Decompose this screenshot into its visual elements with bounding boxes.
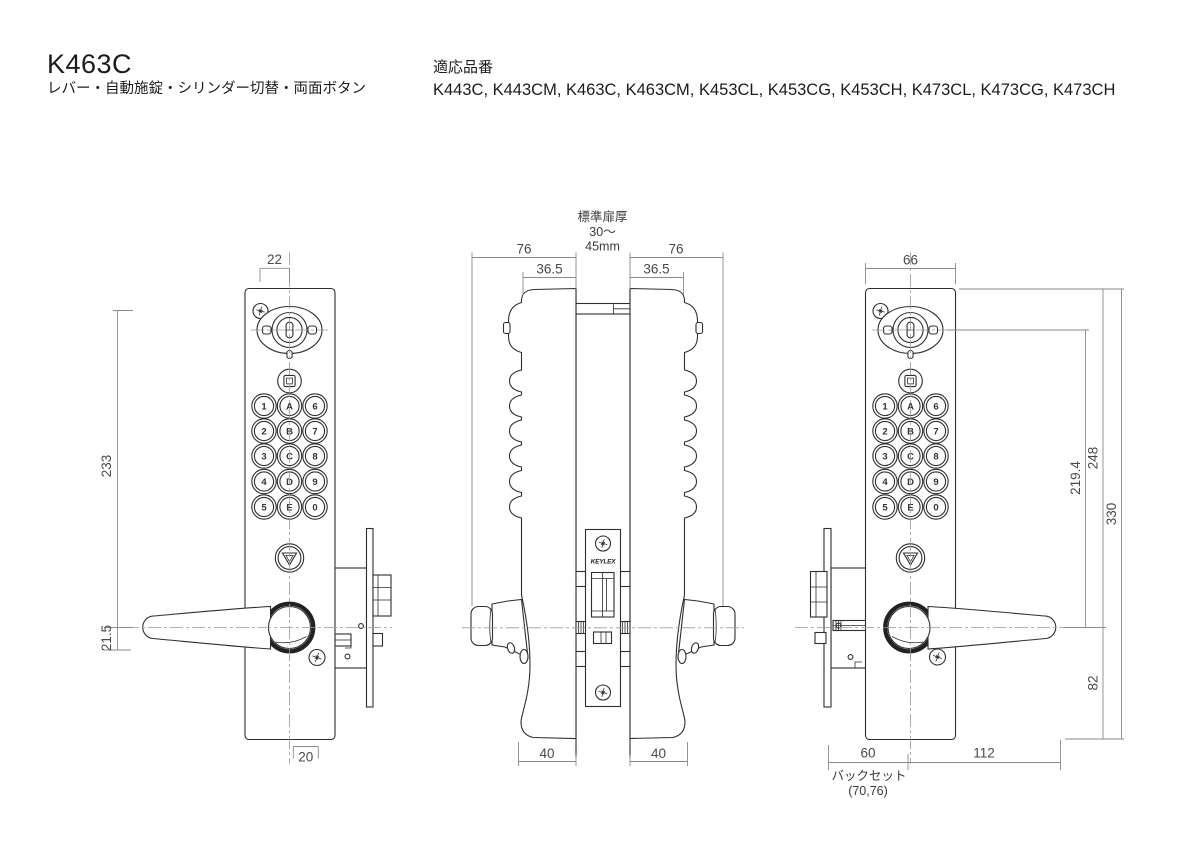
dim-label: 36.5 [643,262,669,277]
keypad-button: 8 [924,444,948,468]
keypad-button-label: 3 [261,451,266,462]
keypad-button: 3 [873,444,897,468]
keypad-button: 3 [252,444,276,468]
keypad-button: 0 [303,495,327,519]
spec-sheet-page: K463C レバー・自動施錠・シリンダー切替・両面ボタン 適応品番 K443C,… [0,0,1200,848]
dim-label: 22 [267,252,282,267]
keypad-button-label: 3 [882,451,887,462]
compatible-models-list: K443C, K443CM, K463C, K463CM, K453CL, K4… [433,81,1115,99]
dim-label: 40 [539,746,554,761]
spindle [576,304,630,315]
keypad-button: 0 [924,495,948,519]
door-thickness-range: 30〜 [589,225,615,239]
keypad-button: 5 [873,495,897,519]
dim-label: 66 [903,253,918,268]
keypad-button-label: 5 [882,502,888,513]
keypad-button: 4 [252,469,276,493]
keypad-button: 1 [252,394,276,418]
keypad-button: 2 [252,419,276,443]
screw-icon [930,649,946,665]
brand-logo: KEYLEX [591,559,617,566]
keypad-button-label: 9 [933,477,938,488]
keypad-button-label: 8 [933,451,938,462]
keypad-button: 1 [873,394,897,418]
backset-options: (70,76) [848,784,888,798]
keypad-button-label: 1 [882,401,888,412]
keypad-button-label: 8 [312,451,317,462]
door-thickness-unit: 45mm [585,240,620,254]
keypad-button: 6 [303,394,327,418]
dim-label: 112 [973,746,995,761]
keypad-button-label: 4 [882,477,888,488]
keypad-button: 5 [252,495,276,519]
keypad-button-label: 6 [312,401,317,412]
compatible-models-label: 適応品番 [433,58,493,76]
keypad-button: 9 [303,469,327,493]
keypad-button: 4 [873,469,897,493]
keypad-button: 7 [924,419,948,443]
keypad-button-label: 2 [261,426,266,437]
keypad-button-label: 9 [312,477,317,488]
dim-label: 36.5 [536,262,562,277]
dim-label: 60 [860,746,875,761]
keypad-button-label: 0 [933,502,938,513]
technical-drawing: K463C レバー・自動施錠・シリンダー切替・両面ボタン 適応品番 K443C,… [0,0,1200,848]
backset-label: バックセット [831,769,906,783]
dim-label: 248 [1086,447,1101,470]
keypad-button: 7 [303,419,327,443]
page-background [0,0,1200,848]
dim-label: 21.5 [99,625,114,651]
dim-label: 76 [516,242,531,257]
dim-label: 20 [298,750,313,765]
keypad-button-label: 0 [312,502,317,513]
keypad-button-label: 7 [312,426,317,437]
keypad-button: 9 [924,469,948,493]
page-title: K463C [47,49,132,79]
keypad-button-label: 1 [261,401,267,412]
product-subtitle: レバー・自動施錠・シリンダー切替・両面ボタン [47,80,366,97]
keypad-button-label: 7 [933,426,938,437]
keypad-button-label: 5 [261,502,267,513]
keypad-button-label: 6 [933,401,938,412]
door-thickness-label: 標準扉厚 [577,209,627,224]
dim-label: 330 [1104,503,1119,526]
keypad-button: 8 [303,444,327,468]
keypad-button: 6 [924,394,948,418]
dim-label: 82 [1086,675,1101,690]
keypad-button-label: 2 [882,426,887,437]
dim-label: 219.4 [1068,461,1083,495]
dim-label: 40 [651,746,666,761]
dim-label: 233 [99,455,114,478]
dim-label: 76 [668,242,683,257]
screw-icon [309,650,325,666]
keypad-button: 2 [873,419,897,443]
keypad-button-label: 4 [261,477,267,488]
